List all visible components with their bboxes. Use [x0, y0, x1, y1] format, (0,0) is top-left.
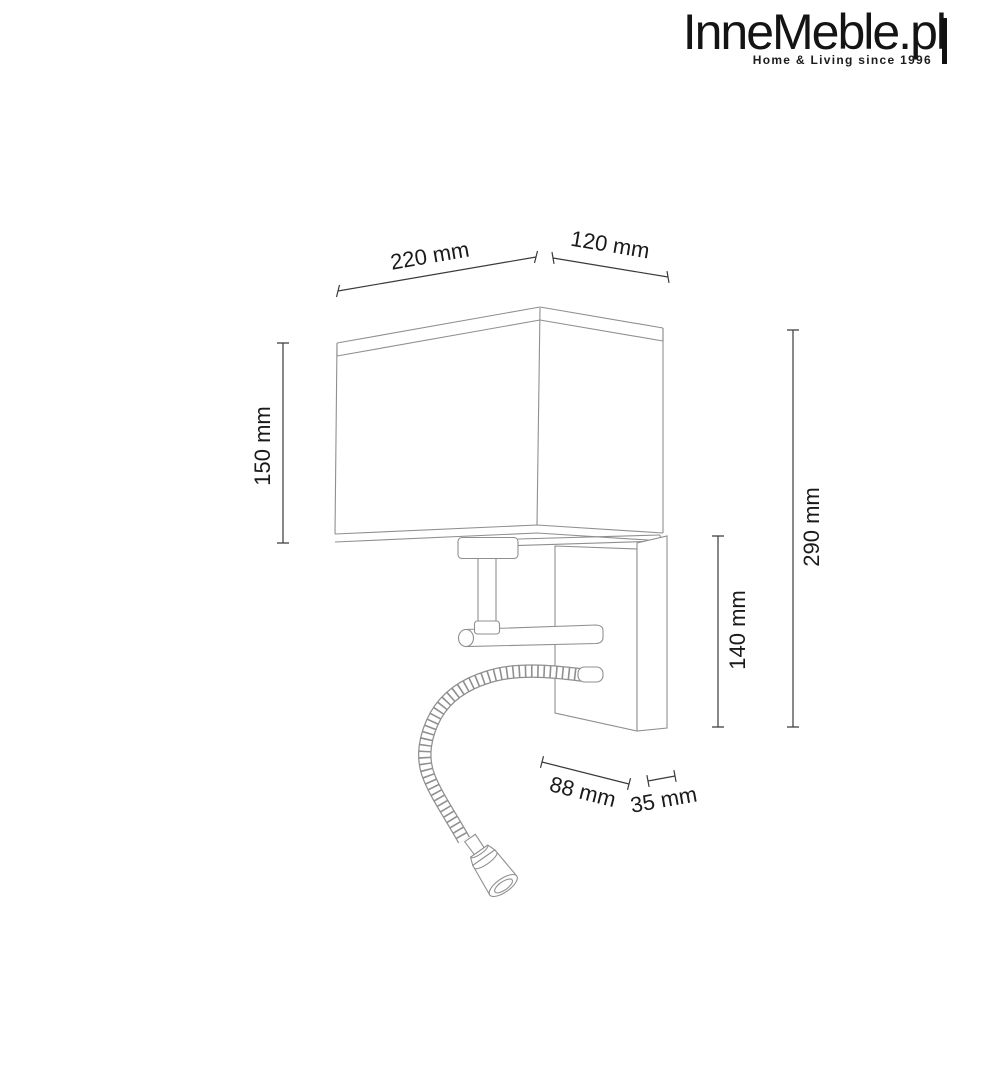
base-plate-top-edge — [518, 535, 660, 539]
lampshade-body-fill — [335, 307, 663, 534]
arm-end-cap — [459, 630, 474, 647]
dimension-label-120: 120 mm — [569, 226, 652, 264]
dimension-shade-height: 150 mm — [250, 343, 289, 543]
dimension-label-140: 140 mm — [725, 590, 750, 669]
dimension-bracket-height: 140 mm — [712, 536, 750, 727]
lamp-stem — [475, 559, 500, 634]
led-head — [456, 829, 520, 901]
wall-lamp-dimension-diagram-page: { "logo": { "brand": "InneMeble.pl", "ta… — [0, 0, 1000, 1070]
dimension-bracket-depth: 35 mm — [628, 770, 699, 818]
dimension-label-150: 150 mm — [250, 406, 275, 485]
dimension-arm-length: 88 mm — [541, 756, 631, 812]
dimension-line-140 — [712, 536, 724, 727]
dimension-label-88: 88 mm — [547, 771, 618, 812]
lamp-technical-drawing: 220 mm 120 mm 150 mm 290 mm 140 mm 88 mm… — [0, 0, 1000, 1070]
dimension-label-220: 220 mm — [388, 237, 471, 275]
dimension-shade-width: 220 mm — [337, 237, 538, 297]
shade-mount-block — [458, 538, 518, 559]
dimension-shade-depth: 120 mm — [552, 226, 669, 283]
dimension-label-35: 35 mm — [628, 781, 699, 817]
stem-collar — [475, 621, 500, 634]
dimension-total-height: 290 mm — [787, 330, 824, 727]
dimension-line-35 — [647, 770, 676, 787]
dimension-label-290: 290 mm — [799, 487, 824, 566]
dimension-line-290 — [787, 330, 799, 727]
bracket-side-face — [637, 536, 667, 731]
dimension-line-150 — [277, 343, 289, 543]
lampshade — [335, 307, 663, 542]
gooseneck-ferrule — [578, 667, 603, 682]
